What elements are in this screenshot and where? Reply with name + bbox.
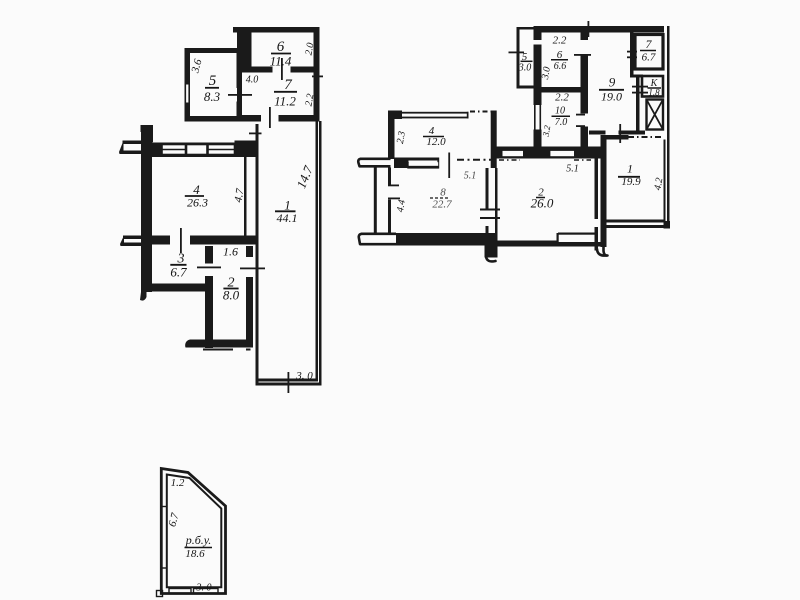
svg-text:1.6: 1.6 <box>223 245 238 259</box>
svg-text:2.2: 2.2 <box>555 92 569 104</box>
svg-text:44.1: 44.1 <box>277 211 298 225</box>
svg-text:4.0: 4.0 <box>246 75 259 86</box>
svg-text:10: 10 <box>555 106 565 117</box>
svg-text:7: 7 <box>646 37 653 51</box>
svg-text:11.4: 11.4 <box>270 54 292 69</box>
svg-text:18.6: 18.6 <box>185 548 205 560</box>
svg-text:5.1: 5.1 <box>464 171 477 182</box>
svg-text:6.7: 6.7 <box>170 265 187 280</box>
svg-text:19.0: 19.0 <box>601 90 622 104</box>
svg-text:8.3: 8.3 <box>204 89 221 104</box>
svg-text:6.6: 6.6 <box>554 61 567 72</box>
svg-text:3.0: 3.0 <box>518 63 532 74</box>
svg-text:1: 1 <box>627 162 633 176</box>
svg-text:р.б.у.: р.б.у. <box>185 533 212 547</box>
svg-text:4.2: 4.2 <box>652 177 665 191</box>
svg-text:12.0: 12.0 <box>426 136 446 148</box>
svg-text:4.4: 4.4 <box>395 199 408 213</box>
svg-text:4.7: 4.7 <box>232 187 246 203</box>
svg-text:5.1: 5.1 <box>566 164 579 175</box>
svg-text:3. 0: 3. 0 <box>295 370 313 382</box>
svg-text:2.2: 2.2 <box>303 93 316 107</box>
svg-text:3. 0: 3. 0 <box>196 583 212 594</box>
svg-text:22.7: 22.7 <box>432 199 452 211</box>
svg-text:2.3: 2.3 <box>395 130 408 144</box>
svg-text:6.7: 6.7 <box>642 52 656 64</box>
svg-text:1.2: 1.2 <box>171 477 185 489</box>
svg-text:11.2: 11.2 <box>274 94 296 109</box>
svg-text:19.9: 19.9 <box>621 176 641 188</box>
svg-text:1.8: 1.8 <box>648 88 660 98</box>
svg-text:3.0: 3.0 <box>540 66 553 81</box>
svg-text:9: 9 <box>609 75 616 90</box>
svg-text:2.0: 2.0 <box>303 42 316 56</box>
svg-text:26.3: 26.3 <box>187 196 208 210</box>
svg-text:2.2: 2.2 <box>553 35 567 47</box>
svg-text:8.0: 8.0 <box>223 288 240 303</box>
svg-text:5: 5 <box>209 73 217 89</box>
svg-text:7.0: 7.0 <box>555 117 568 128</box>
svg-text:8: 8 <box>440 187 446 199</box>
